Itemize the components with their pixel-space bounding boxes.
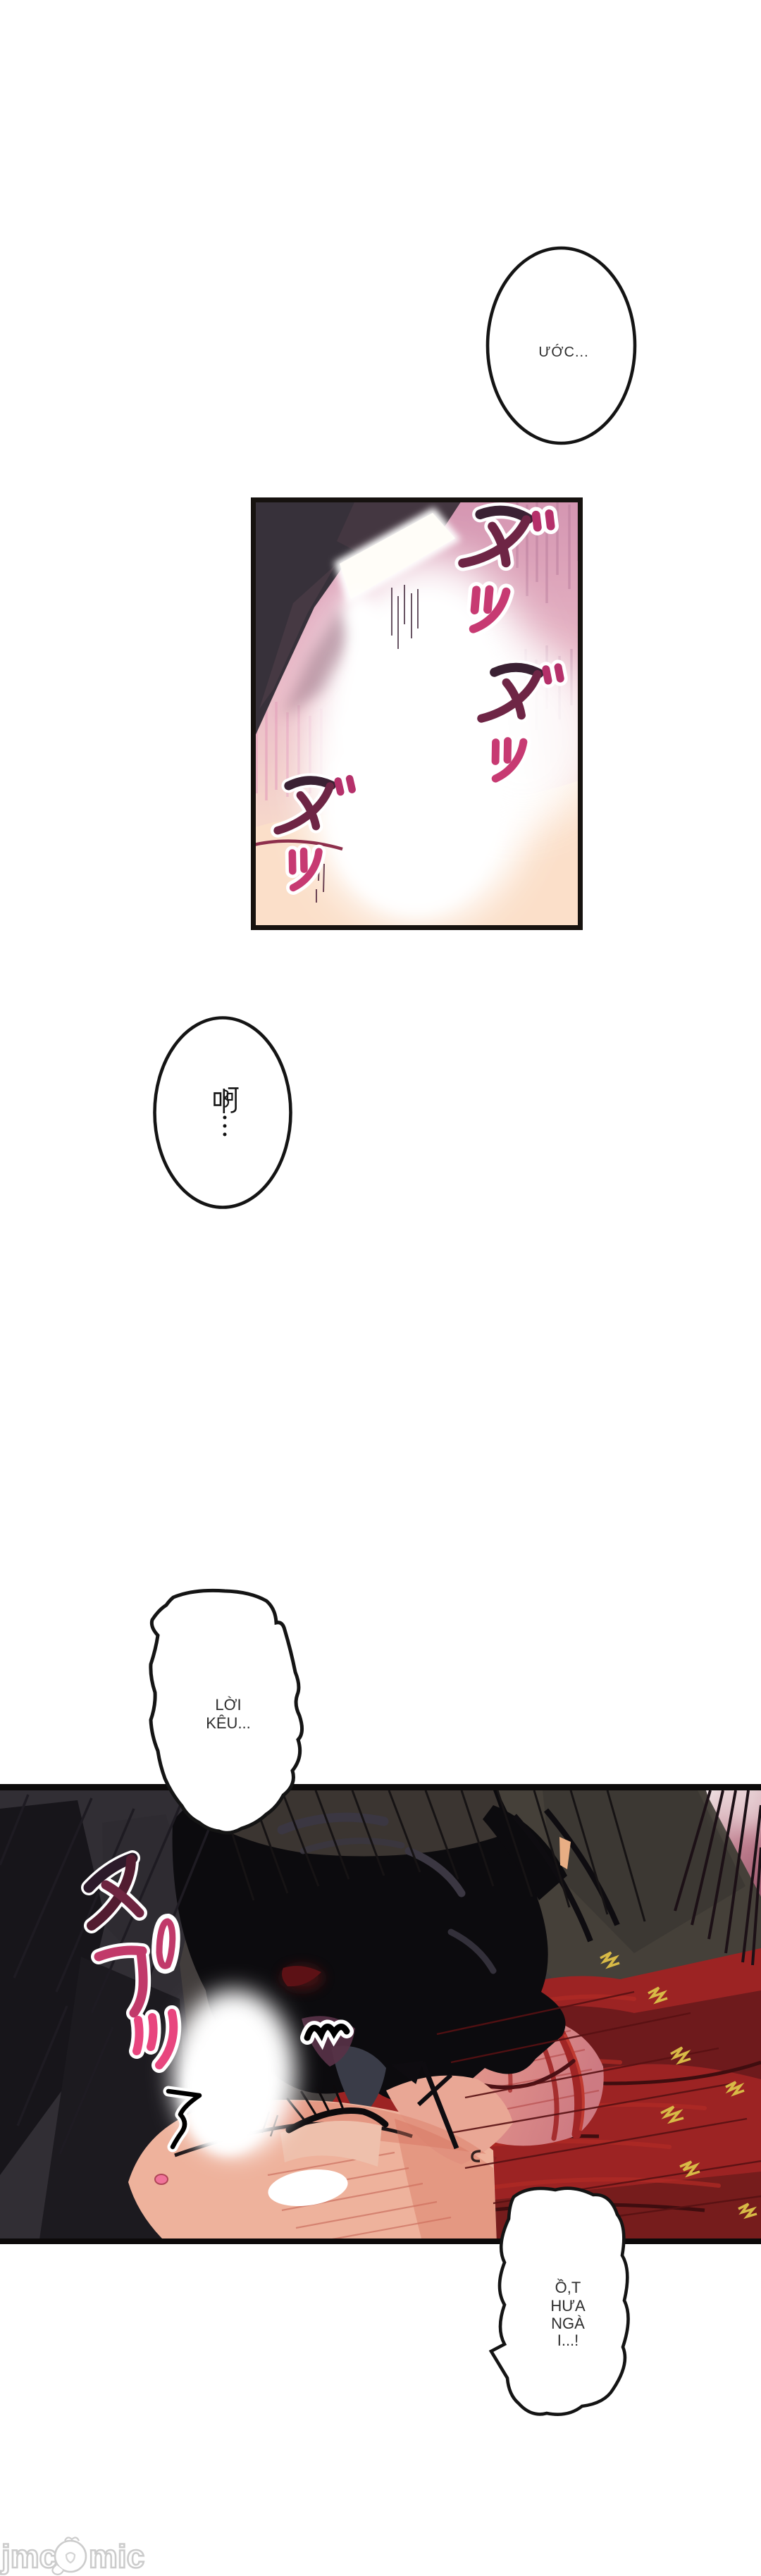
svg-text:LỜI: LỜI — [215, 1696, 241, 1714]
svg-text:HƯA: HƯA — [550, 2297, 586, 2315]
svg-text:Ồ,T: Ồ,T — [555, 2279, 581, 2296]
svg-text:mic: mic — [89, 2538, 144, 2575]
svg-text:ƯỚC...: ƯỚC... — [538, 344, 588, 360]
svg-text:NGÀ: NGÀ — [551, 2315, 585, 2332]
svg-text:jmc: jmc — [1, 2538, 57, 2575]
svg-text:KÊU...: KÊU... — [206, 1714, 251, 1732]
svg-text:I...!: I...! — [557, 2332, 579, 2349]
